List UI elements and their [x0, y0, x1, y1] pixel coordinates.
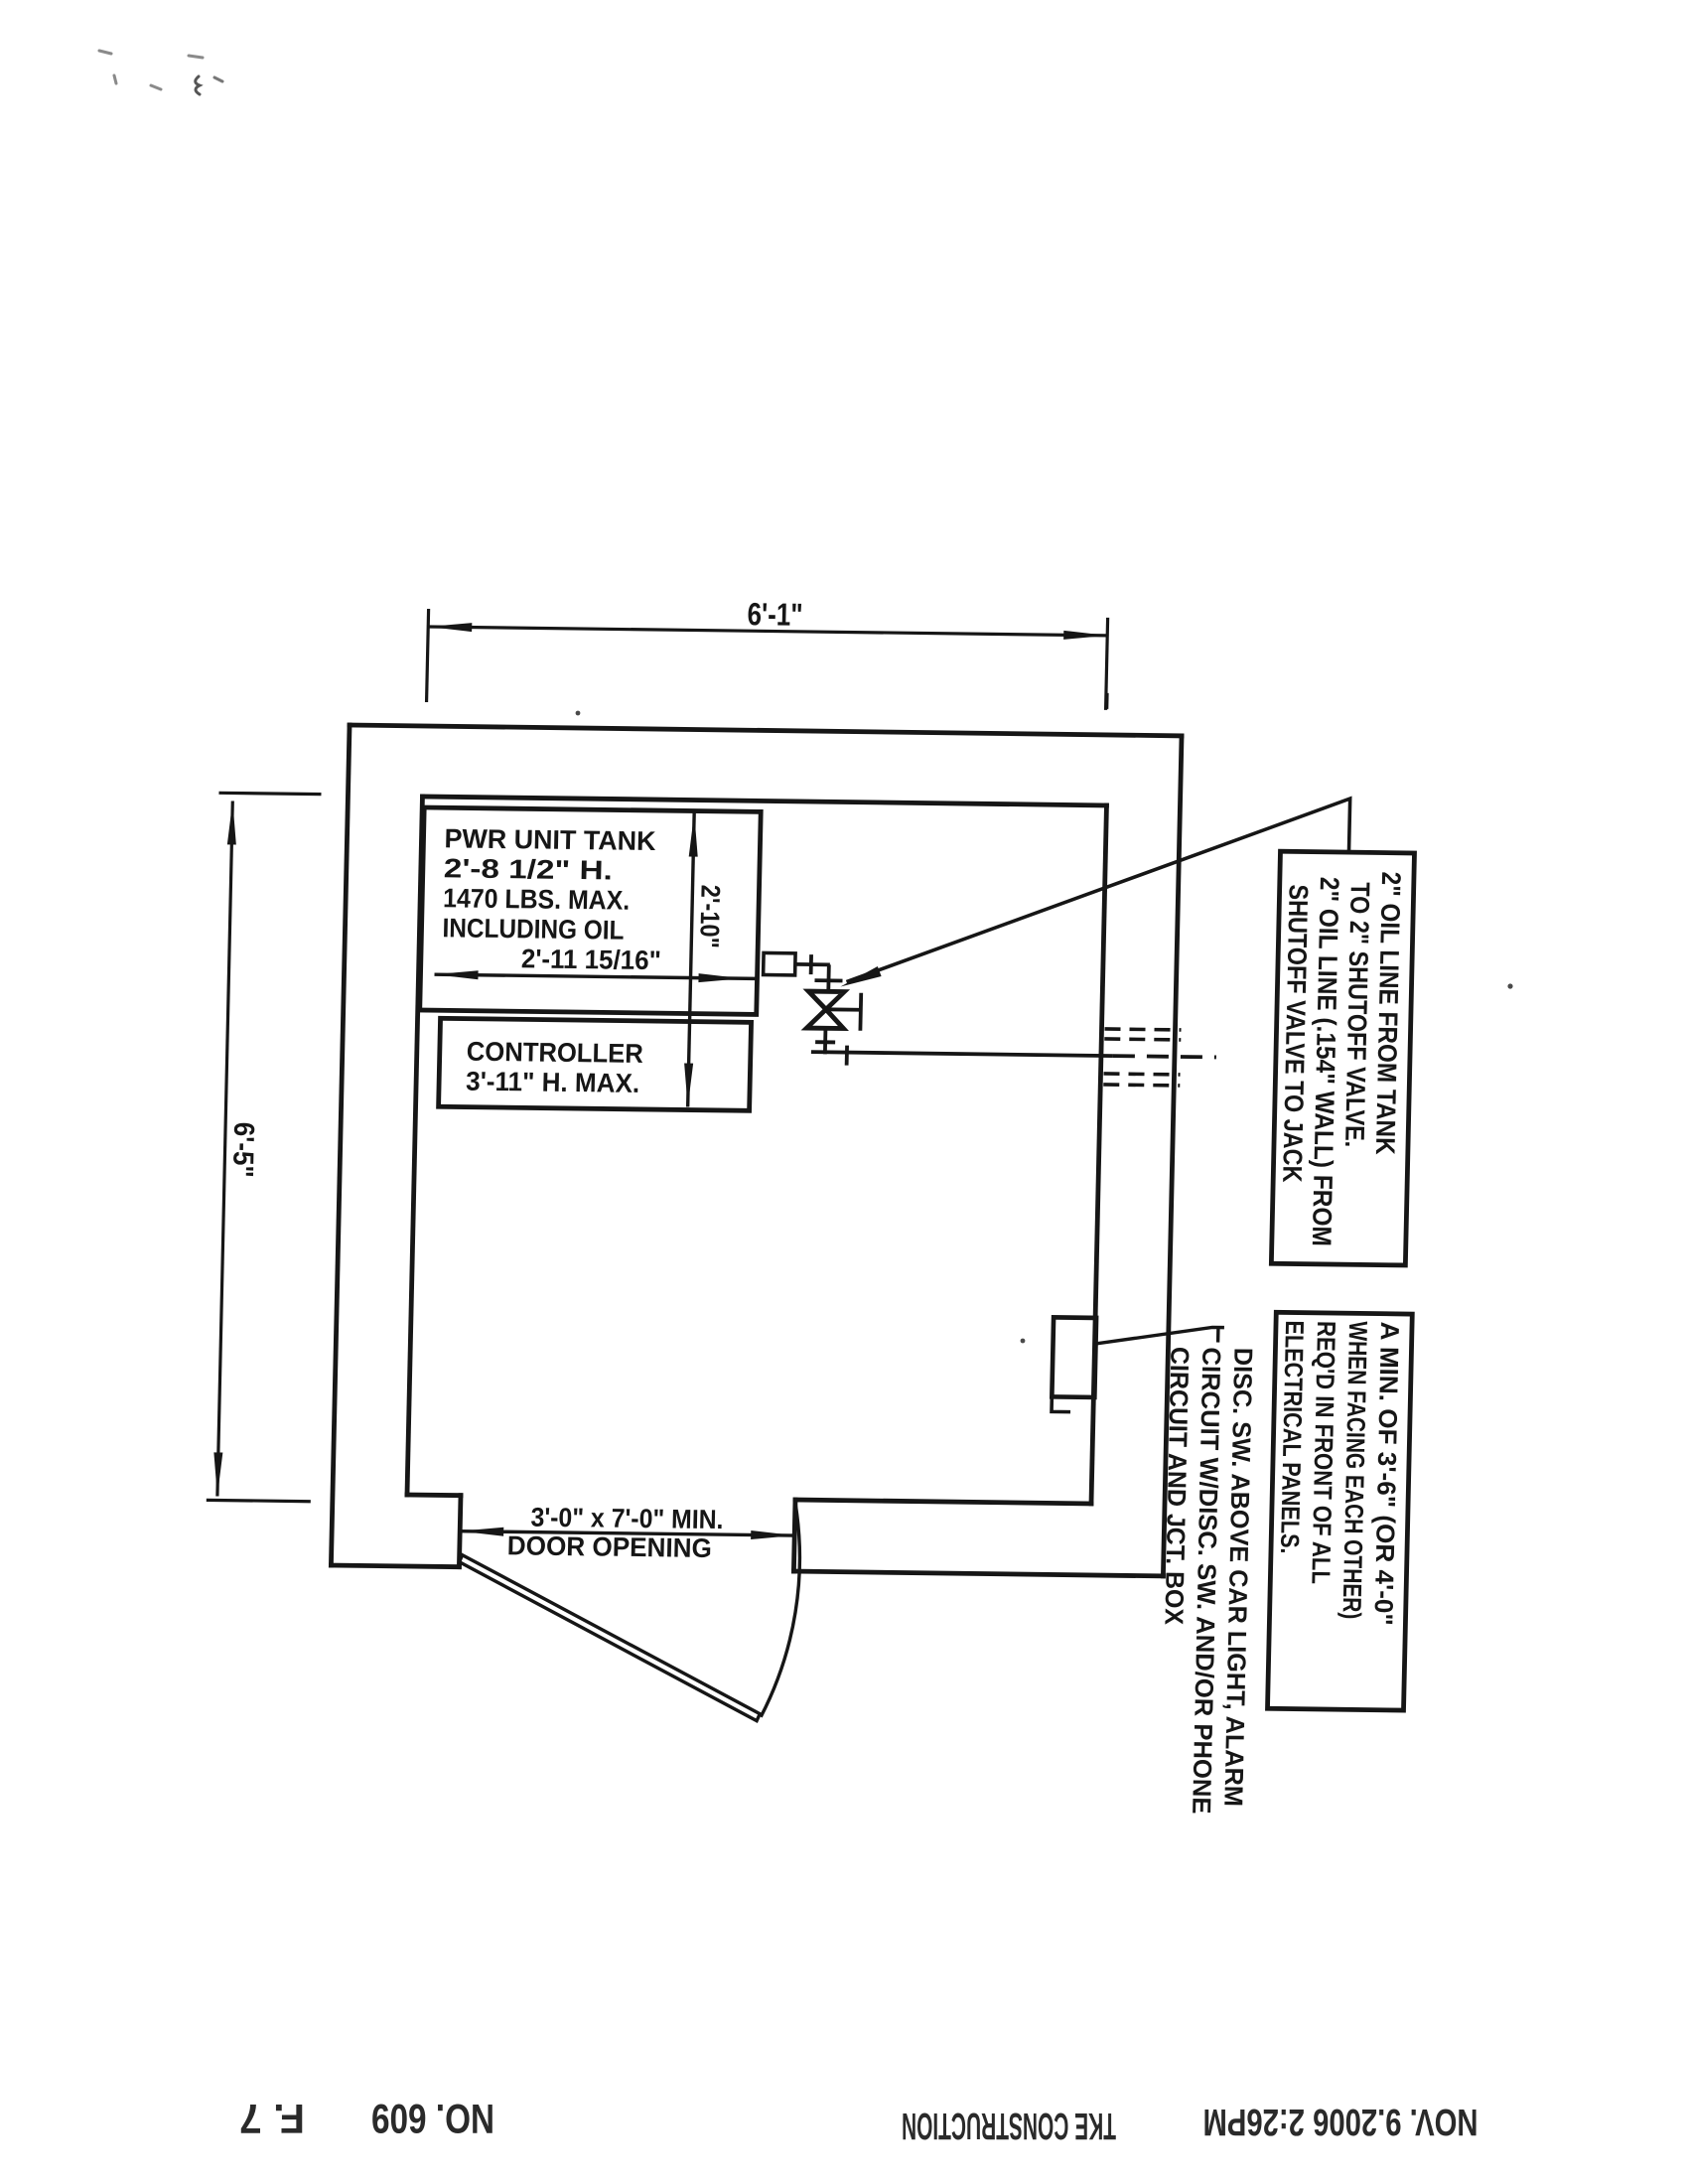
svg-text:CONTROLLER: CONTROLLER	[466, 1037, 643, 1069]
svg-text:2'-11 15/16": 2'-11 15/16"	[521, 944, 662, 975]
svg-text:2" OIL LINE FROM TANK: 2" OIL LINE FROM TANK	[1370, 871, 1406, 1155]
svg-text:REQ'D IN FRONT OF ALL: REQ'D IN FRONT OF ALL	[1306, 1321, 1341, 1584]
svg-text:3'-0" x 7'-0" MIN.: 3'-0" x 7'-0" MIN.	[530, 1503, 724, 1535]
svg-text:TKE CONSTRUCTION: TKE CONSTRUCTION	[902, 2105, 1116, 2146]
svg-text:NOV. 9.2006 2:26PM: NOV. 9.2006 2:26PM	[1203, 2101, 1478, 2142]
svg-text:DOOR OPENING: DOOR OPENING	[507, 1530, 713, 1563]
svg-text:PWR UNIT TANK: PWR UNIT TANK	[444, 823, 656, 856]
svg-text:INCLUDING OIL: INCLUDING OIL	[442, 913, 625, 945]
svg-text:1470 LBS. MAX.: 1470 LBS. MAX.	[443, 883, 631, 915]
svg-text:NO. 609: NO. 609	[371, 2096, 494, 2142]
svg-text:F. 7: F. 7	[239, 2096, 305, 2142]
svg-text:TO 2" SHUTOFF VALVE.: TO 2" SHUTOFF VALVE.	[1339, 882, 1375, 1147]
svg-text:ELECTRICAL PANELS.: ELECTRICAL PANELS.	[1275, 1320, 1310, 1553]
svg-text:2'-8 1/2" H.: 2'-8 1/2" H.	[444, 853, 614, 885]
svg-text:CIRCUIT AND JCT. BOX: CIRCUIT AND JCT. BOX	[1159, 1347, 1195, 1626]
svg-text:6'-1": 6'-1"	[747, 596, 803, 633]
svg-text:2'-10": 2'-10"	[694, 885, 725, 948]
svg-text:6'-5": 6'-5"	[226, 1122, 259, 1178]
svg-text:3'-11" H. MAX.: 3'-11" H. MAX.	[466, 1067, 640, 1098]
